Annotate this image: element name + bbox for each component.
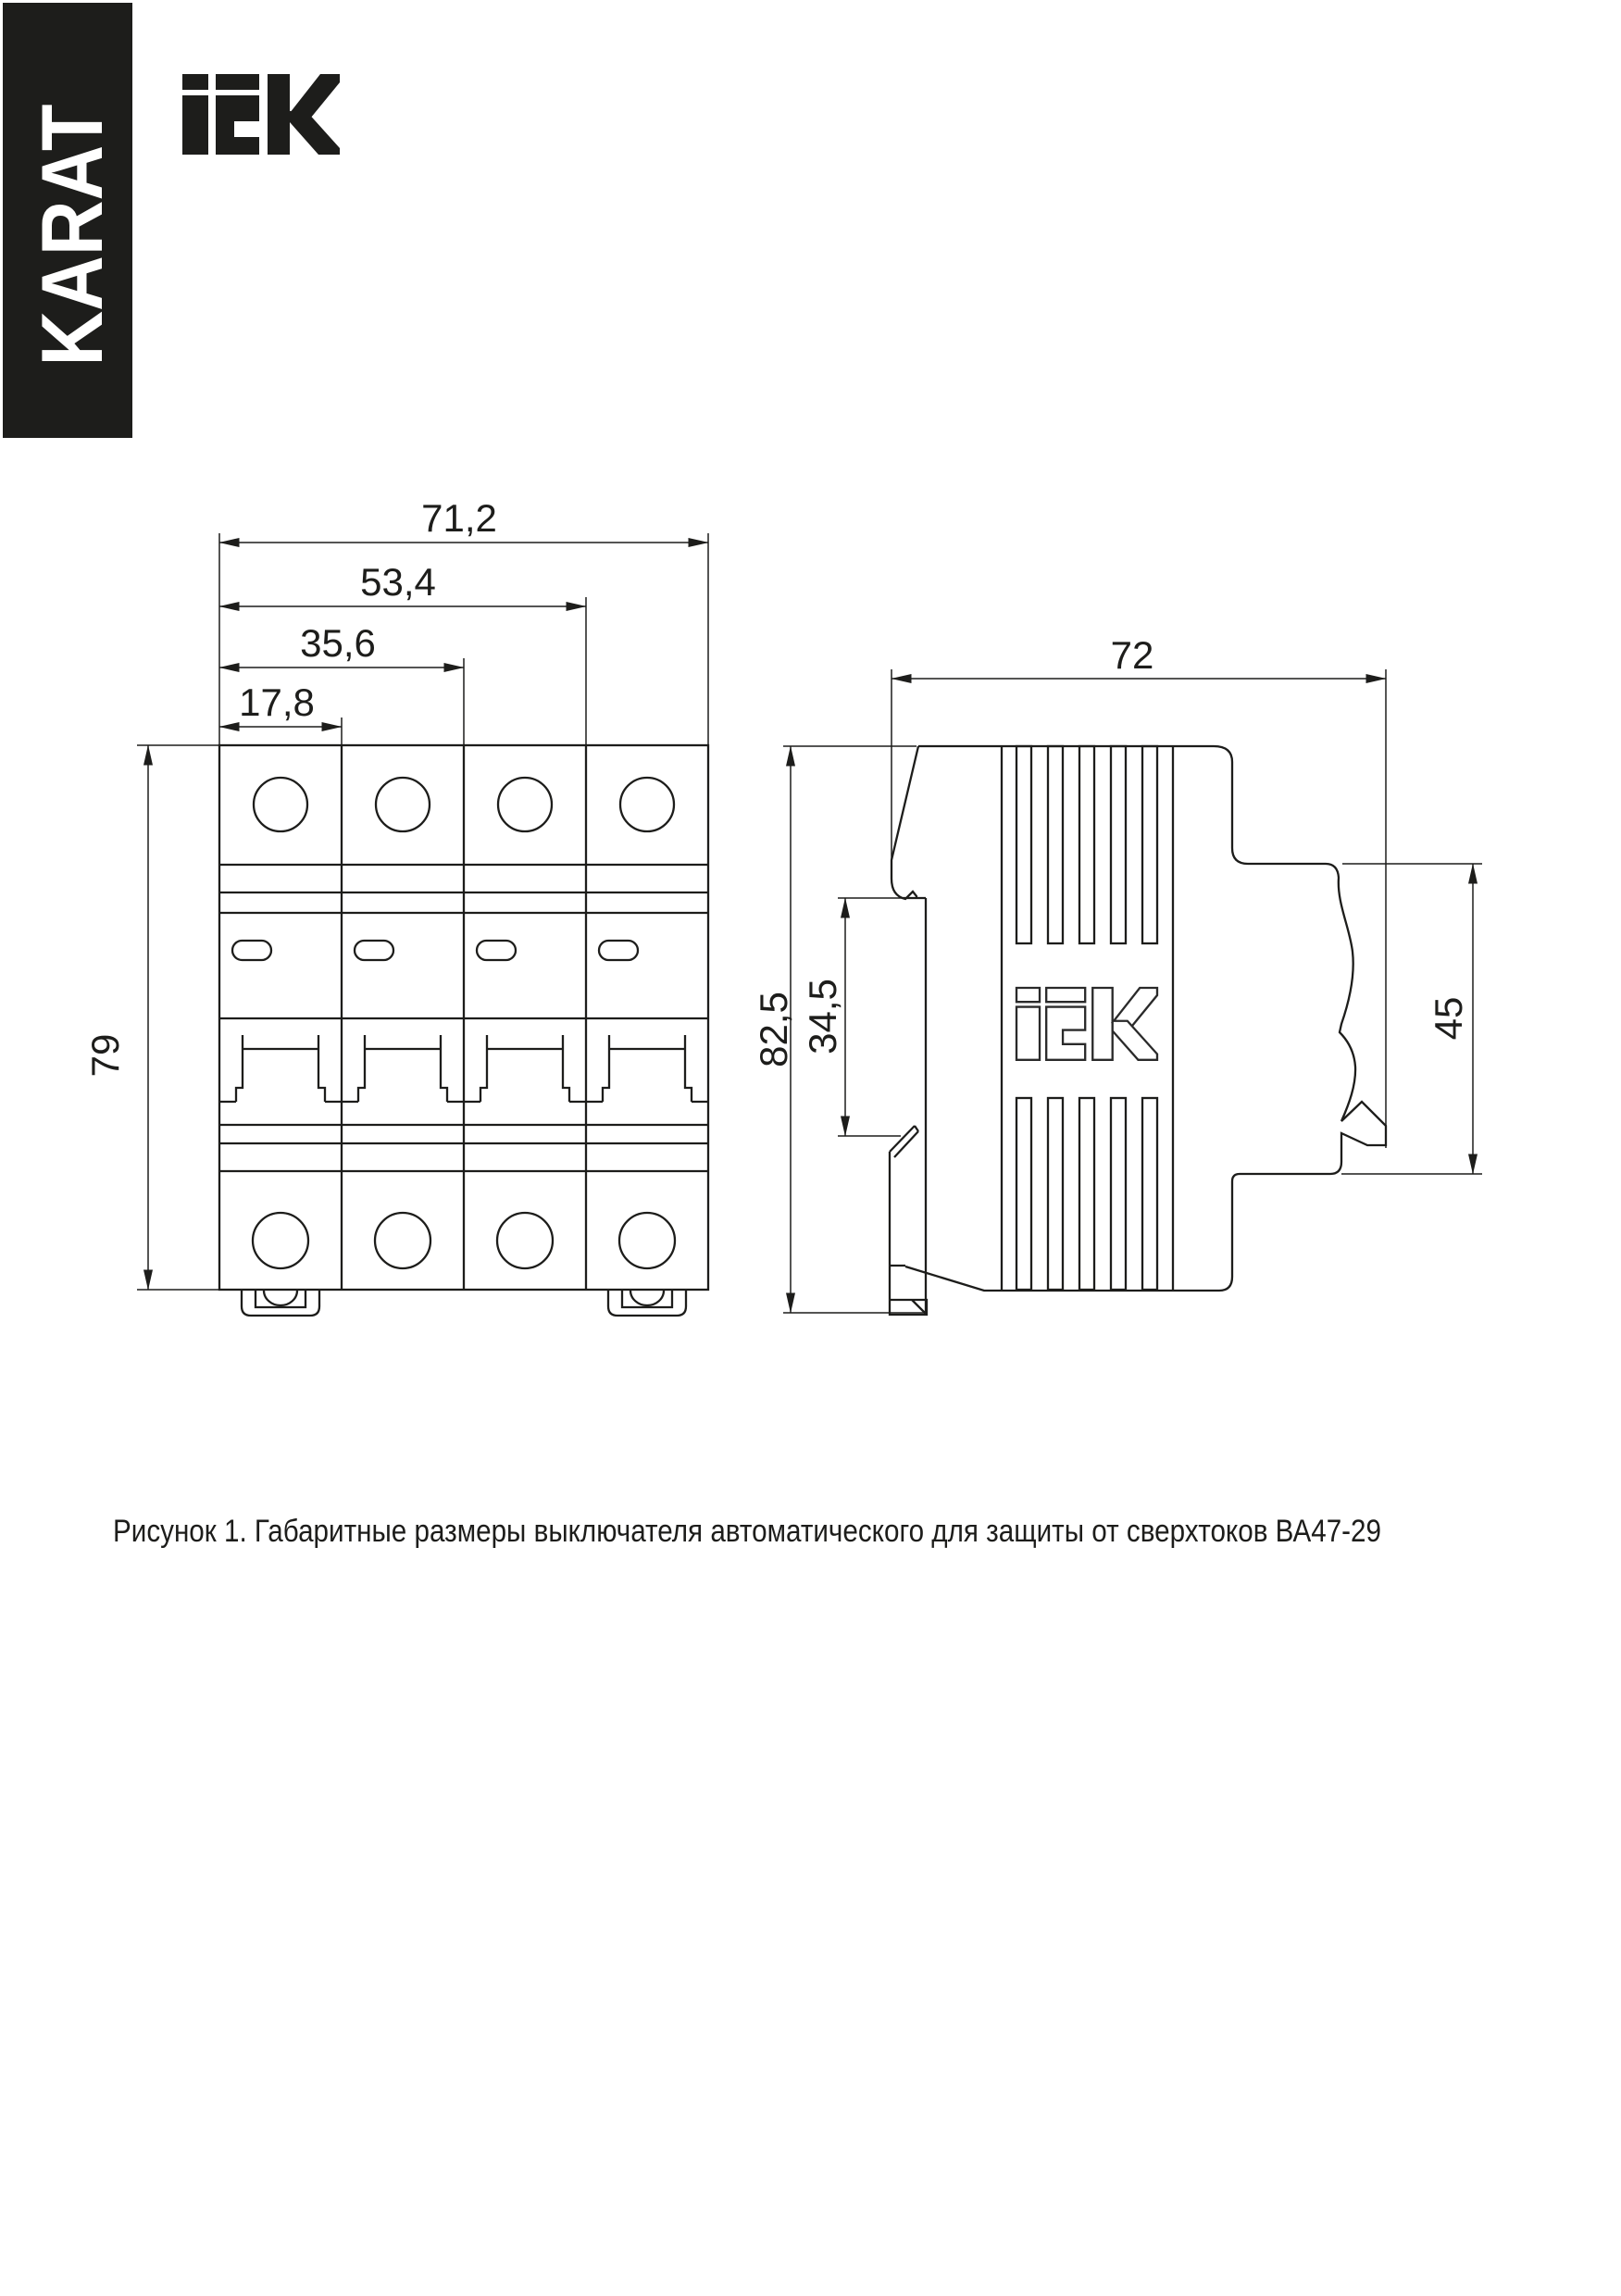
side-body-outline (905, 746, 1386, 1291)
front-din-clips (242, 1290, 686, 1316)
iek-logo (182, 74, 340, 155)
dim-label-width-1mod: 17,8 (239, 680, 315, 724)
dim-label-rail-recess: 34,5 (801, 979, 844, 1054)
front-view (219, 745, 708, 1316)
datasheet-page: KARAT (0, 0, 1621, 2296)
dim-label-width-total: 71,2 (421, 496, 497, 540)
dim-label-side-height: 82,5 (752, 992, 795, 1067)
side-back-profile (890, 746, 927, 1315)
technical-drawing: KARAT (0, 0, 1621, 2296)
side-slats-bottom (1016, 1098, 1157, 1290)
iek-logo-emboss (1016, 988, 1157, 1060)
dim-label-width-3mod: 53,4 (360, 560, 436, 604)
karat-sidebar: KARAT (3, 3, 132, 438)
front-label-windows (232, 941, 638, 960)
side-view-dimensions: 72 82,5 34,5 45 (752, 633, 1482, 1313)
dim-label-front-height: 79 (83, 1034, 127, 1078)
dim-label-front-face: 45 (1427, 997, 1470, 1041)
side-extension-lines (783, 669, 1482, 1313)
side-view (890, 746, 1386, 1315)
dim-label-width-2mod: 35,6 (300, 621, 376, 665)
dim-label-side-width: 72 (1111, 633, 1154, 677)
karat-label: KARAT (23, 105, 120, 367)
side-slats-top (1016, 746, 1157, 943)
figure-caption: Рисунок 1. Габаритные размеры выключател… (113, 1514, 1381, 1549)
front-extension-lines (137, 533, 708, 1290)
